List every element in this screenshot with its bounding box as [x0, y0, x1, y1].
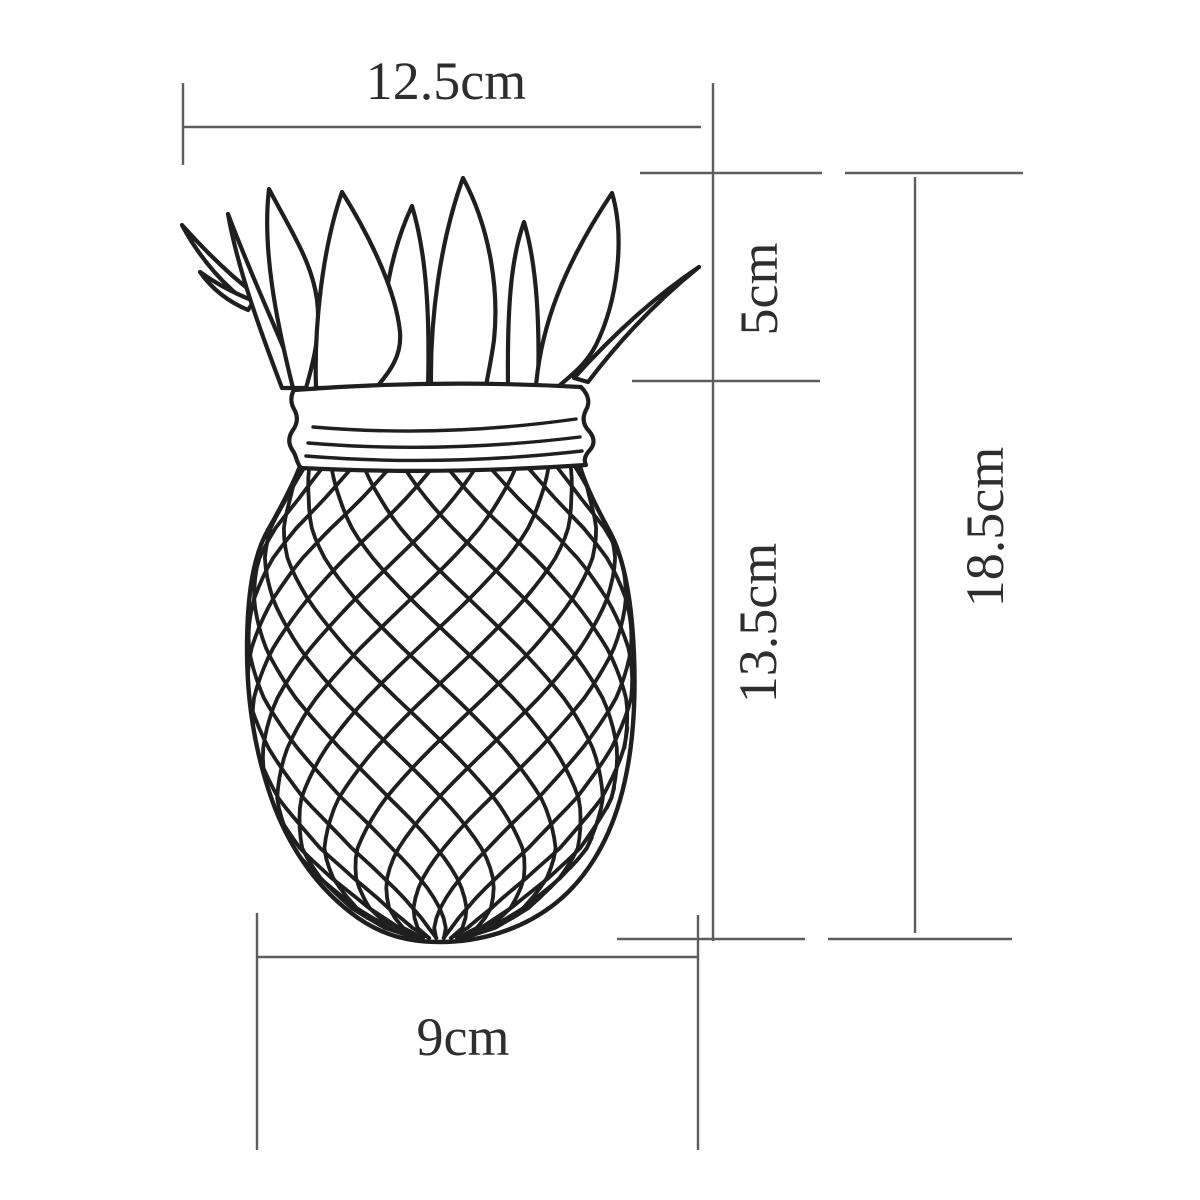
diagram-canvas: 12.5cm 5cm 13.5cm 18.5cm 9cm: [0, 0, 1200, 1200]
label-body-height: 13.5cm: [728, 543, 788, 703]
crown-leaf-mid-left: [316, 192, 401, 388]
label-top-width: 12.5cm: [366, 51, 526, 111]
label-base-width: 9cm: [417, 1007, 510, 1067]
label-total-height: 18.5cm: [955, 447, 1015, 607]
crown-leaf-back-right: [508, 222, 539, 386]
crown-leaf-center: [431, 178, 495, 386]
jar-rim: [289, 384, 593, 471]
jar-body: [247, 458, 635, 942]
jar-body-outline: [247, 458, 635, 942]
label-crown-height: 5cm: [729, 243, 789, 336]
pineapple-crown-leaves: [182, 178, 699, 388]
pineapple-jar-drawing: [182, 178, 699, 942]
dimension-diagram: 12.5cm 5cm 13.5cm 18.5cm 9cm: [0, 0, 1200, 1200]
